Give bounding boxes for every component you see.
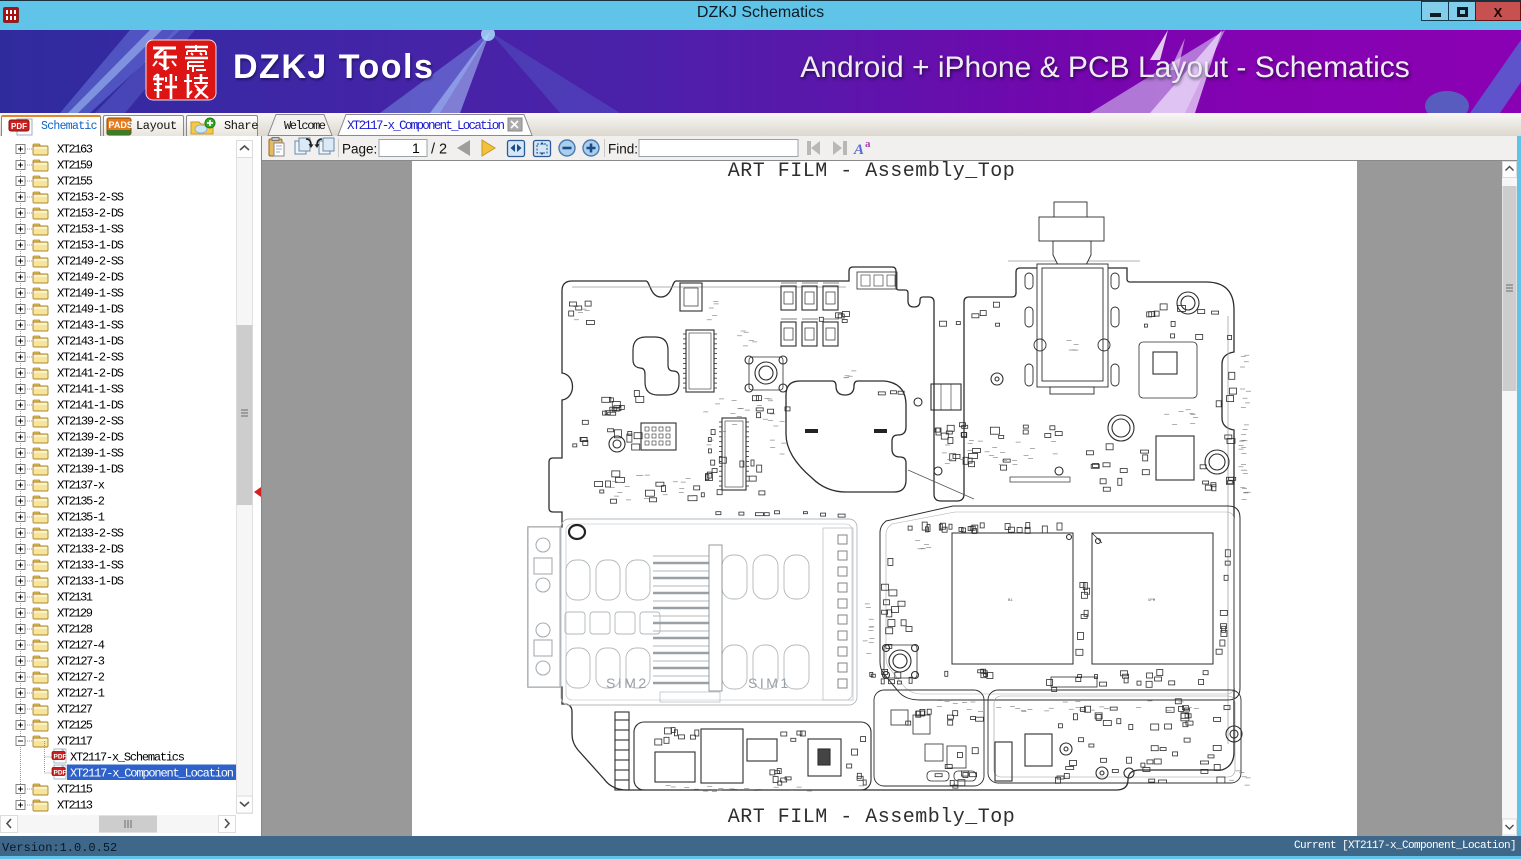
svg-text:XT2141-1-DS: XT2141-1-DS	[57, 399, 124, 413]
svg-text:XT2127-1: XT2127-1	[57, 687, 105, 701]
svg-text:XT2131: XT2131	[57, 591, 93, 605]
svg-text:XT2125: XT2125	[57, 719, 93, 733]
svg-text:XT2117-x_Component_Location: XT2117-x_Component_Location	[347, 119, 505, 133]
svg-text:XT2135-2: XT2135-2	[57, 495, 105, 509]
svg-text:XT2127-3: XT2127-3	[57, 655, 105, 669]
svg-text:XT2127-2: XT2127-2	[57, 671, 105, 685]
svg-text:XT2127-4: XT2127-4	[57, 639, 105, 653]
svg-text:XT2141-2-SS: XT2141-2-SS	[57, 351, 124, 365]
svg-text:XT2117: XT2117	[57, 735, 93, 749]
svg-text:XT2153-1-SS: XT2153-1-SS	[57, 223, 124, 237]
svg-text:Find:: Find:	[608, 142, 638, 157]
svg-text:XT2143-1-SS: XT2143-1-SS	[57, 319, 124, 333]
svg-text:XT2153-2-SS: XT2153-2-SS	[57, 191, 124, 205]
svg-text:XT2139-1-SS: XT2139-1-SS	[57, 447, 124, 461]
svg-text:UPM: UPM	[1148, 599, 1156, 603]
svg-text:1: 1	[412, 140, 420, 156]
svg-text:XT2115: XT2115	[57, 783, 93, 797]
svg-text:A: A	[853, 142, 864, 158]
svg-text:XT2117-x_Component_Location: XT2117-x_Component_Location	[70, 767, 234, 781]
svg-text:XT2135-1: XT2135-1	[57, 511, 105, 525]
svg-text:XT2149-2-SS: XT2149-2-SS	[57, 255, 124, 269]
svg-text:XT2155: XT2155	[57, 175, 93, 189]
svg-text:PADS: PADS	[109, 120, 133, 130]
svg-text:XT2149-2-DS: XT2149-2-DS	[57, 271, 124, 285]
svg-text:XT2159: XT2159	[57, 159, 93, 173]
svg-text:/ 2: / 2	[431, 142, 447, 158]
svg-text:XT2143-1-DS: XT2143-1-DS	[57, 335, 124, 349]
svg-text:XT2149-1-DS: XT2149-1-DS	[57, 303, 124, 317]
svg-text:XT2139-1-DS: XT2139-1-DS	[57, 463, 124, 477]
svg-text:XT2133-1-DS: XT2133-1-DS	[57, 575, 124, 589]
svg-text:XT2128: XT2128	[57, 623, 93, 637]
svg-text:SIM1: SIM1	[748, 675, 791, 691]
svg-text:SIM2: SIM2	[606, 675, 649, 691]
svg-text:Welcome: Welcome	[284, 119, 326, 133]
svg-text:a: a	[865, 138, 871, 150]
svg-text:XT2137-x: XT2137-x	[57, 479, 105, 493]
svg-text:XT2141-1-SS: XT2141-1-SS	[57, 383, 124, 397]
svg-text:XT2139-2-SS: XT2139-2-SS	[57, 415, 124, 429]
svg-text:Page:: Page:	[342, 142, 377, 157]
svg-text:XT2149-1-SS: XT2149-1-SS	[57, 287, 124, 301]
svg-text:XT2127: XT2127	[57, 703, 93, 717]
svg-text:XT2141-2-DS: XT2141-2-DS	[57, 367, 124, 381]
svg-text:XT2163: XT2163	[57, 143, 93, 157]
svg-text:XT2139-2-DS: XT2139-2-DS	[57, 431, 124, 445]
svg-text:PDF: PDF	[11, 122, 27, 131]
svg-text:XT2153-1-DS: XT2153-1-DS	[57, 239, 124, 253]
svg-text:XT2113: XT2113	[57, 799, 93, 813]
svg-text:XT2129: XT2129	[57, 607, 93, 621]
svg-text:XT2133-2-SS: XT2133-2-SS	[57, 527, 124, 541]
svg-text:B1: B1	[1008, 599, 1013, 603]
svg-text:XT2153-2-DS: XT2153-2-DS	[57, 207, 124, 221]
svg-text:XT2117-x_Schematics: XT2117-x_Schematics	[70, 751, 185, 765]
svg-text:XT2133-1-SS: XT2133-1-SS	[57, 559, 124, 573]
svg-text:XT2133-2-DS: XT2133-2-DS	[57, 543, 124, 557]
